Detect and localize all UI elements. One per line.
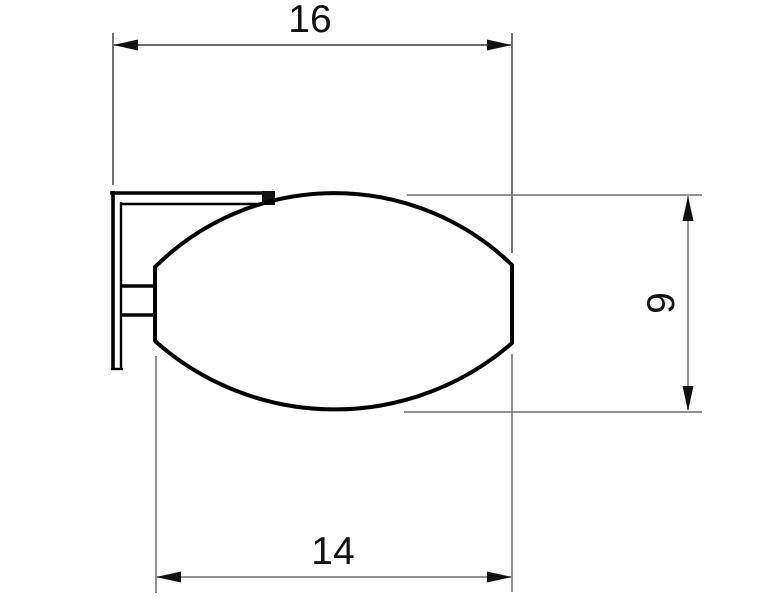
wall-bracket: [110, 191, 275, 370]
arrowhead-left-icon: [113, 40, 138, 51]
lamp-body-outline: [155, 193, 512, 409]
technical-drawing-canvas: 16 9 14: [0, 0, 782, 600]
arrowhead-up-icon: [683, 196, 694, 221]
dimension-drawing: 16 9 14: [0, 0, 782, 600]
body-height-dimension: 9: [404, 195, 702, 412]
mounting-arm: [121, 286, 157, 315]
overall-width-dimension: 16: [113, 0, 512, 253]
arrowhead-right-icon: [487, 40, 512, 51]
body-width-dimension: 14: [156, 354, 512, 593]
arrowhead-down-icon: [683, 386, 694, 411]
arrowhead-left-icon: [156, 572, 181, 583]
overall-width-dimension-label: 16: [288, 0, 331, 41]
body-width-dimension-label: 14: [311, 530, 354, 573]
body-height-dimension-label: 9: [640, 292, 683, 314]
arrowhead-right-icon: [487, 572, 512, 583]
